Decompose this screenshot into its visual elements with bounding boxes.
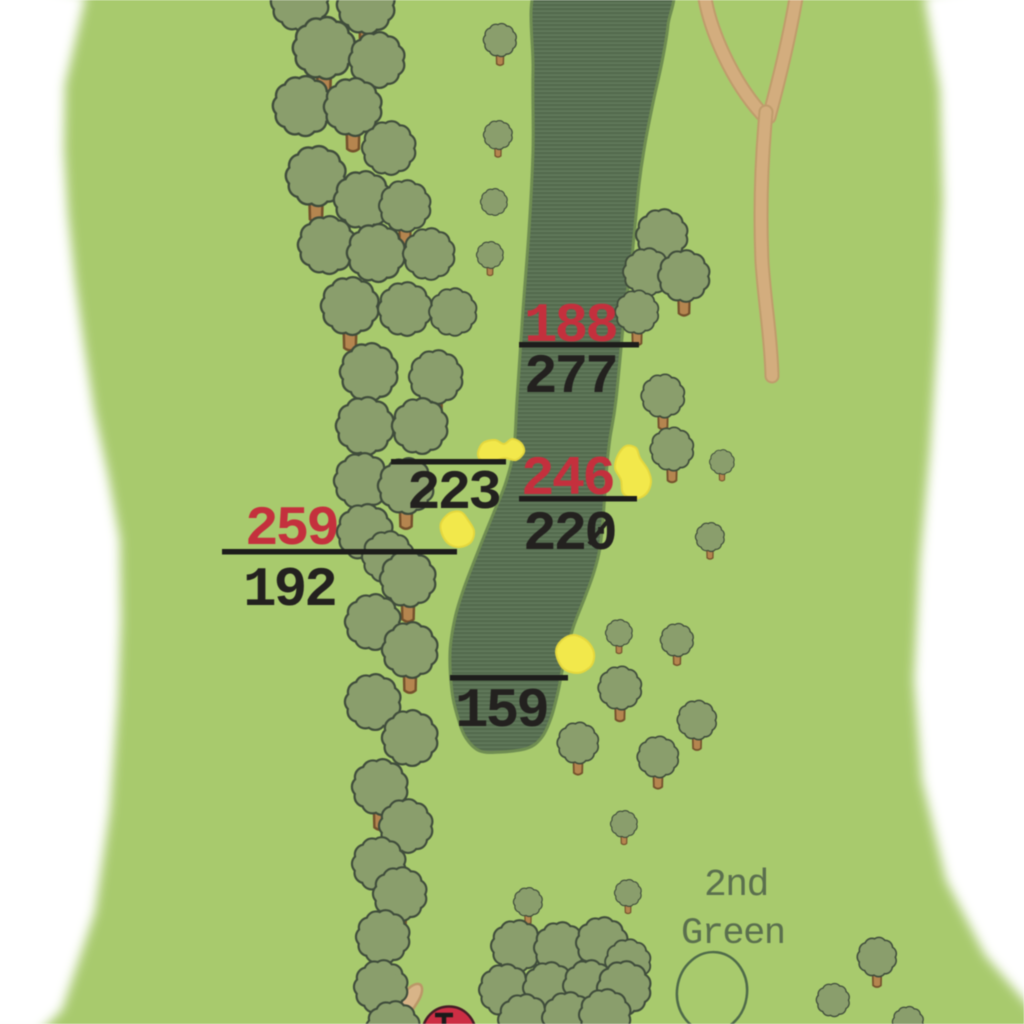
svg-text:Green: Green [681,913,785,955]
svg-text:159: 159 [455,679,547,743]
svg-text:192: 192 [243,558,335,622]
svg-text:277: 277 [524,345,616,409]
svg-text:2nd: 2nd [704,864,768,907]
svg-text:223: 223 [407,461,499,525]
svg-text:220: 220 [523,502,615,566]
